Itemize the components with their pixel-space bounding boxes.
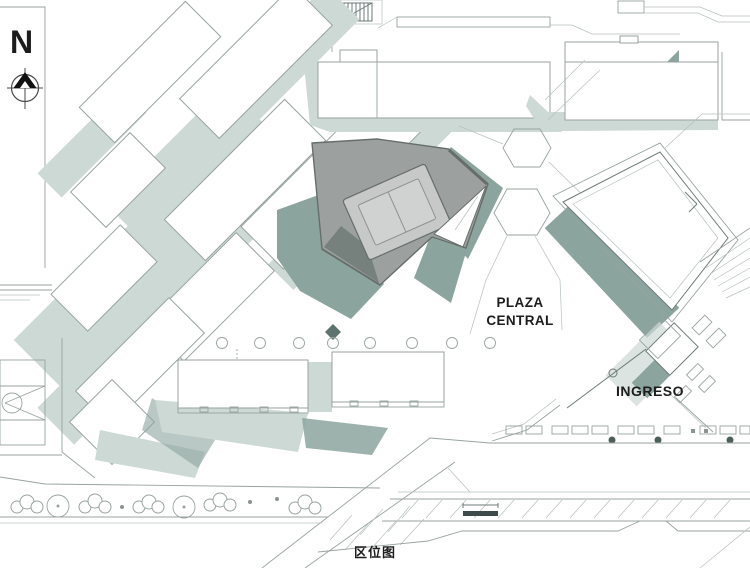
site-plan: N PLAZA CENTRAL INGRESO 区位图 [0,0,750,568]
building-top-right [526,36,750,131]
drawing-caption: 区位图 [0,542,750,561]
parking-row [506,426,750,444]
street-trees [0,477,380,523]
north-arrow-icon [7,68,43,109]
north-label: N [10,24,34,61]
ingreso-label: INGRESO [595,383,705,399]
site-plan-drawing [0,0,750,568]
buildings-bottom-center [155,338,496,456]
plaza-central-label: PLAZA CENTRAL [455,294,585,329]
